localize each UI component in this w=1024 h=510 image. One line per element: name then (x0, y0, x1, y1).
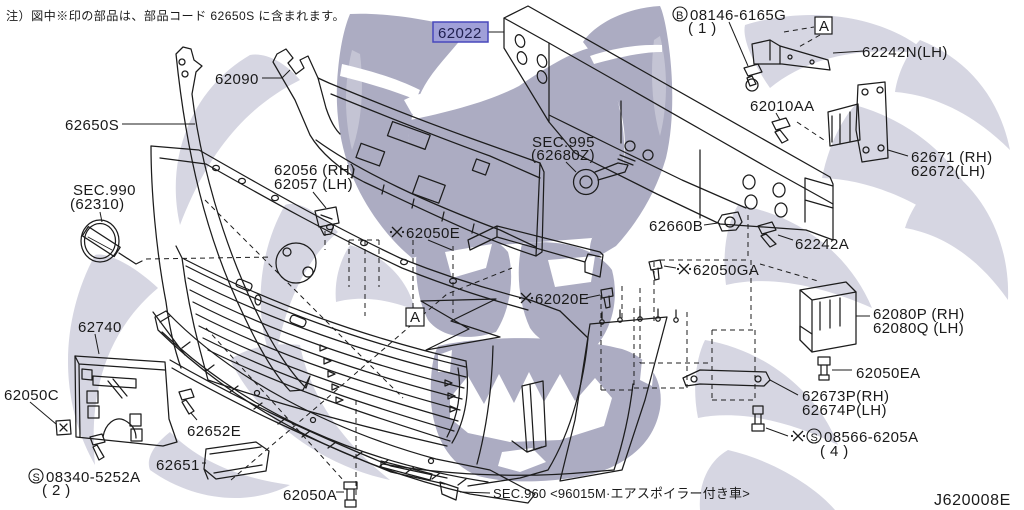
svg-text:( 1 ): ( 1 ) (688, 20, 717, 37)
svg-text:62650S: 62650S (65, 117, 119, 134)
svg-text:注）図中※印の部品は、部品コード 62650S に含まれます: 注）図中※印の部品は、部品コード 62650S に含まれます。 (6, 8, 345, 23)
svg-text:( 2 ): ( 2 ) (42, 482, 71, 499)
svg-text:62050EA: 62050EA (856, 365, 921, 382)
svg-text:A: A (819, 18, 829, 35)
svg-text:(62680Z): (62680Z) (531, 147, 595, 164)
svg-text:SEC.960 <96015M·エアスポイラー付き車>: SEC.960 <96015M·エアスポイラー付き車> (493, 486, 750, 501)
svg-text:( 4 ): ( 4 ) (820, 443, 849, 460)
svg-text:(62310): (62310) (70, 196, 125, 213)
svg-text:62242A: 62242A (795, 236, 849, 253)
svg-text:B: B (676, 10, 683, 22)
svg-text:S: S (33, 472, 40, 484)
svg-text:62050GA: 62050GA (693, 262, 759, 279)
svg-text:J620008E: J620008E (934, 492, 1011, 509)
svg-text:62050C: 62050C (4, 387, 59, 404)
svg-text:62050A: 62050A (283, 487, 337, 504)
svg-text:62057 (LH): 62057 (LH) (274, 176, 353, 193)
svg-text:S: S (811, 432, 818, 444)
svg-text:62022: 62022 (438, 25, 482, 42)
svg-text:A: A (410, 309, 420, 326)
svg-text:62674P(LH): 62674P(LH) (802, 402, 887, 419)
svg-text:62090: 62090 (215, 71, 259, 88)
svg-text:62672(LH): 62672(LH) (911, 163, 985, 180)
svg-text:62651: 62651 (156, 457, 200, 474)
svg-text:62242N(LH): 62242N(LH) (862, 44, 948, 61)
svg-text:62660B: 62660B (649, 218, 703, 235)
svg-text:62652E: 62652E (187, 423, 241, 440)
svg-text:62010AA: 62010AA (750, 98, 815, 115)
svg-text:62050E: 62050E (406, 225, 460, 242)
svg-text:62740: 62740 (78, 319, 122, 336)
svg-text:62080Q (LH): 62080Q (LH) (873, 320, 964, 337)
svg-text:62020E: 62020E (535, 291, 589, 308)
